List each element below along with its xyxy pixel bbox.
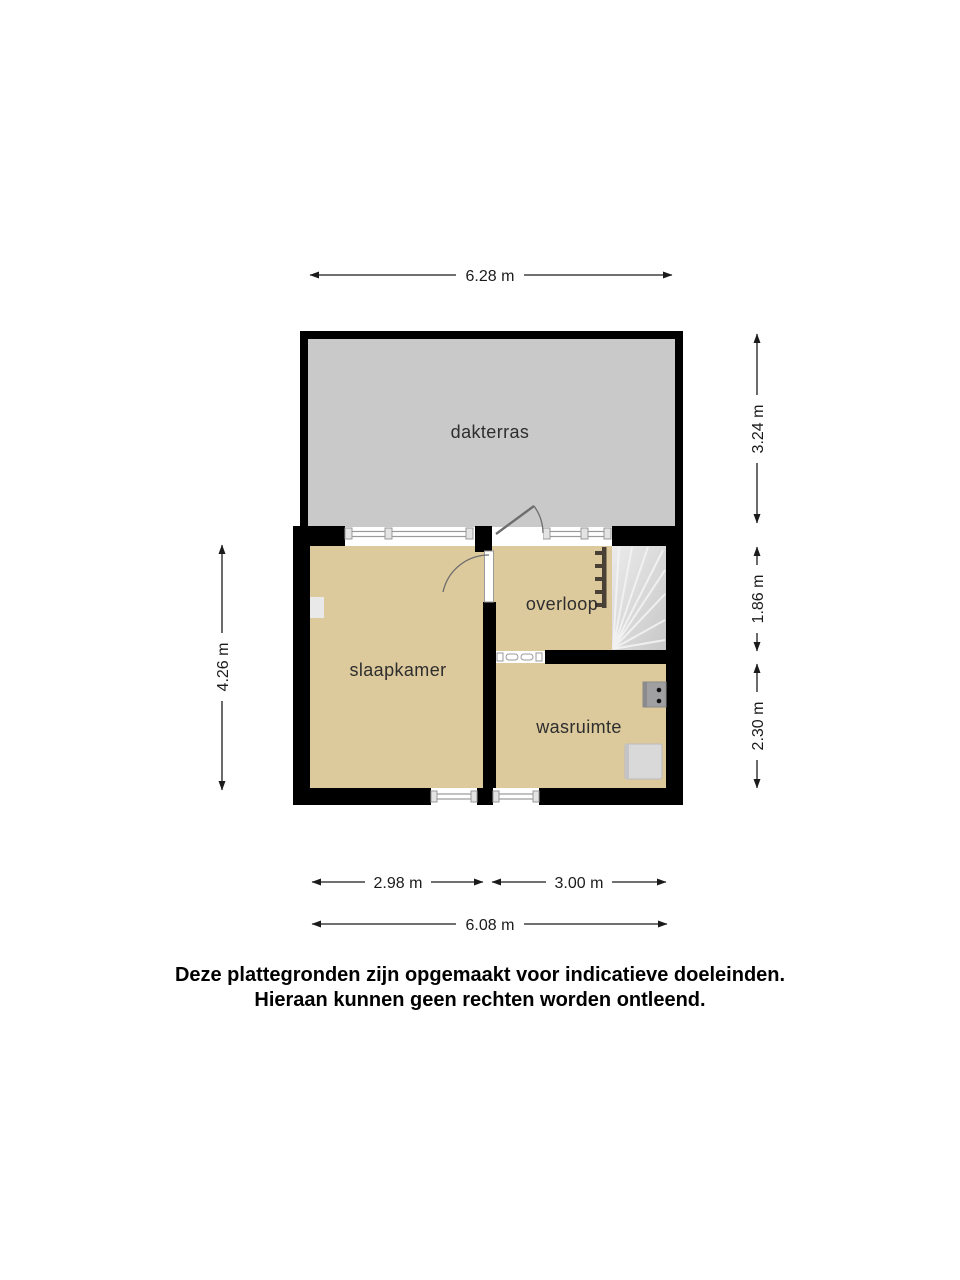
dimension-label: 2.30 m	[750, 702, 767, 751]
window-glazing	[546, 532, 609, 537]
disclaimer-line2: Hieraan kunnen geen rechten worden ontle…	[254, 989, 705, 1011]
window-divider	[385, 528, 392, 539]
washer-edge	[625, 744, 629, 779]
opening-mark	[506, 654, 518, 660]
laundry-opening	[496, 651, 545, 663]
washer-body	[625, 744, 662, 779]
window-glazing	[349, 532, 471, 537]
window-divider	[466, 528, 473, 539]
opening-mark	[497, 653, 503, 661]
opening-mark	[536, 653, 542, 661]
railing-tick	[595, 551, 603, 555]
dimension-label: 4.26 m	[215, 643, 232, 692]
window-divider	[581, 528, 588, 539]
terrace-wall-top	[300, 331, 683, 339]
interior-wall-laundry	[545, 650, 666, 664]
floor-plan: dakterras slaapkamer overloop wasruimte …	[0, 0, 960, 1280]
exterior-wall-bottom-post	[477, 788, 493, 805]
laundry-label: wasruimte	[535, 717, 622, 737]
dimension-label: 6.28 m	[466, 268, 515, 285]
window-divider	[533, 791, 539, 802]
boiler-knob	[657, 699, 662, 704]
opening-mark	[521, 654, 533, 660]
dimension-label: 6.08 m	[466, 917, 515, 934]
boiler-knob	[657, 688, 662, 693]
disclaimer-line1: Deze plattegronden zijn opgemaakt voor i…	[175, 964, 785, 986]
terrace-label: dakterras	[451, 422, 530, 442]
window-glazing	[496, 794, 536, 799]
railing-tick	[595, 564, 603, 568]
door-opening	[492, 527, 543, 545]
window-divider	[543, 528, 550, 539]
bedroom-label: slaapkamer	[349, 660, 446, 680]
railing-tick	[595, 577, 603, 581]
interior-wall-bedroom	[483, 602, 496, 788]
exterior-wall-left	[293, 526, 310, 805]
exterior-wall-top-post	[475, 526, 492, 552]
boiler-edge	[643, 682, 647, 707]
window-divider	[471, 791, 477, 802]
dimension-label: 3.24 m	[750, 405, 767, 454]
window-divider	[493, 791, 499, 802]
door-leaf	[485, 551, 494, 602]
window-divider	[431, 791, 437, 802]
washer-appliance	[625, 744, 662, 779]
window-divider	[604, 528, 611, 539]
floor-plan-canvas: dakterras slaapkamer overloop wasruimte …	[0, 0, 960, 1280]
dimension-label: 1.86 m	[750, 575, 767, 624]
dimension-label: 3.00 m	[555, 875, 604, 892]
stairs	[612, 546, 666, 650]
dimension-label: 2.98 m	[374, 875, 423, 892]
exterior-wall-bottom-right	[539, 788, 683, 805]
window-divider	[345, 528, 352, 539]
terrace-wall-left	[300, 331, 308, 527]
exterior-wall-bottom-left	[293, 788, 431, 805]
window-glazing	[434, 794, 474, 799]
terrace-wall-right	[675, 331, 683, 532]
exterior-wall-right	[666, 526, 683, 805]
landing-label: overloop	[526, 594, 598, 614]
radiator	[310, 597, 324, 618]
boiler-appliance	[643, 682, 666, 707]
